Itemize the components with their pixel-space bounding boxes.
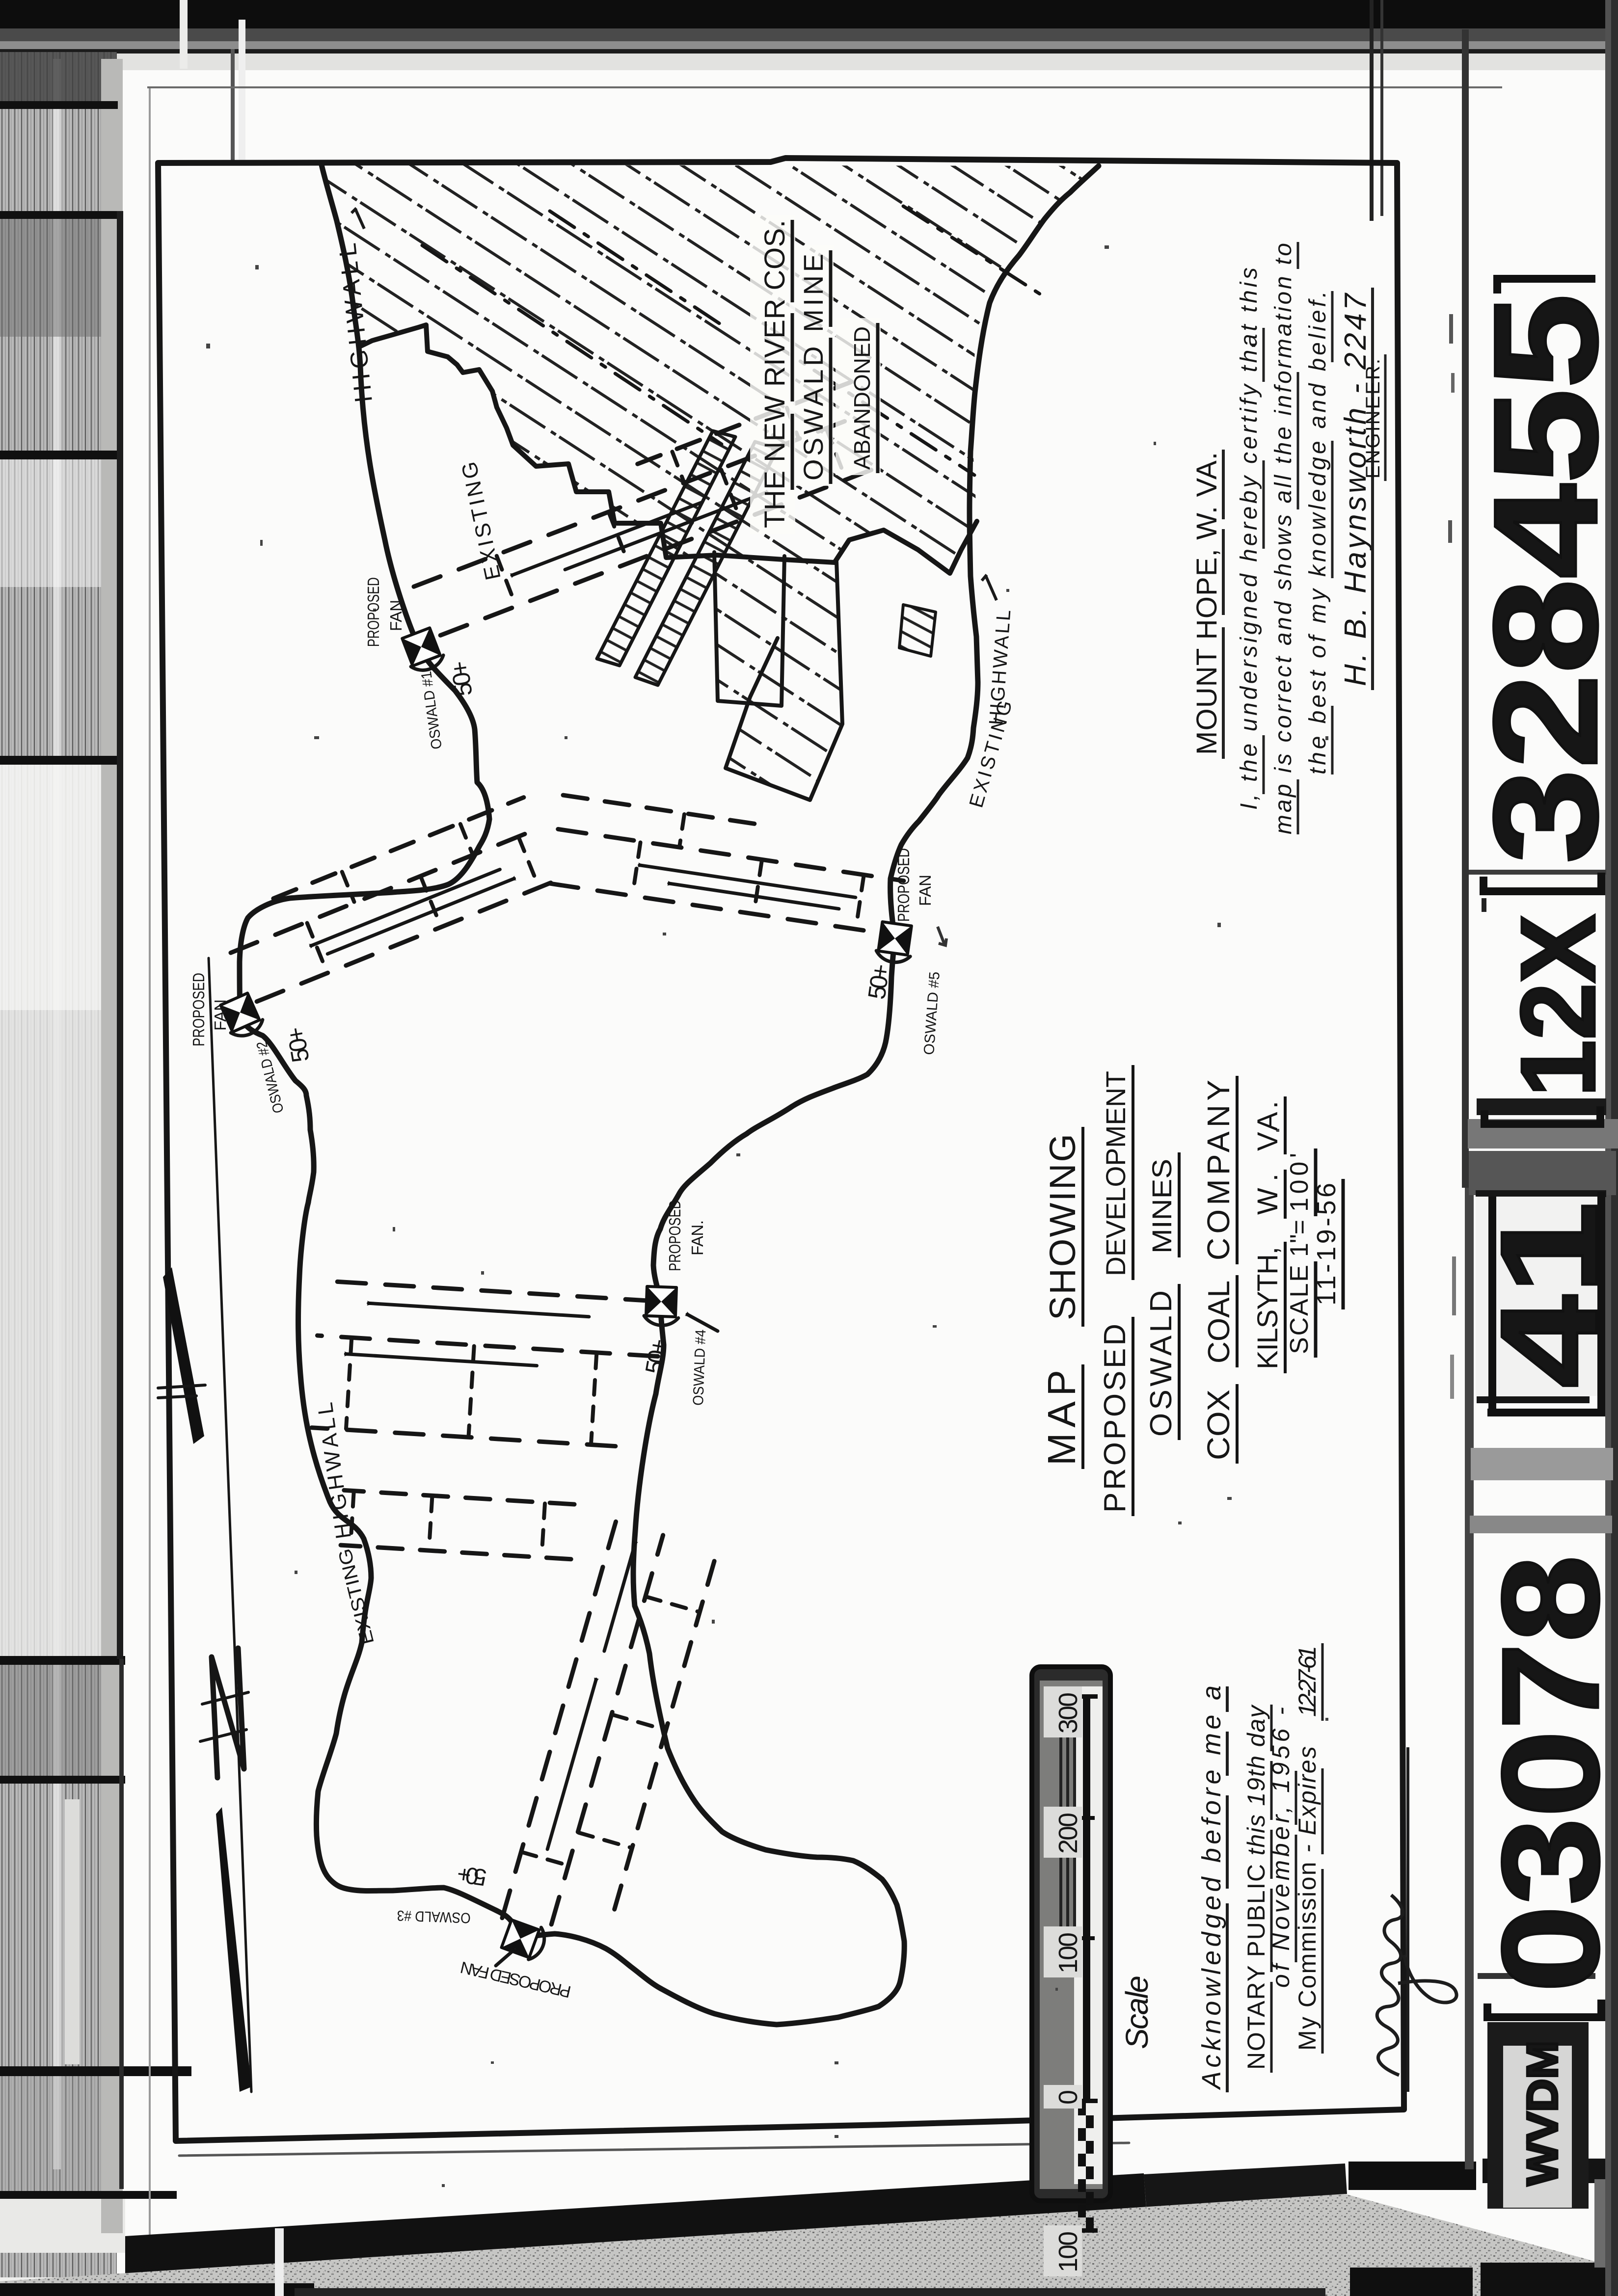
svg-text:100: 100 bbox=[1053, 1932, 1083, 1974]
svg-text:OSWALD: OSWALD bbox=[1144, 1290, 1178, 1437]
svg-text:328455: 328455 bbox=[1463, 294, 1618, 864]
svg-text:FAN: FAN bbox=[387, 600, 405, 631]
svg-text:300: 300 bbox=[1053, 1692, 1083, 1734]
svg-text:ABANDONED: ABANDONED bbox=[849, 326, 875, 470]
svg-text:03078: 03078 bbox=[1474, 1555, 1618, 1993]
svg-text:PROPOSED: PROPOSED bbox=[364, 577, 382, 647]
svg-text:MINES: MINES bbox=[1146, 1159, 1177, 1254]
svg-text:DEVELOPMENT: DEVELOPMENT bbox=[1100, 1071, 1131, 1276]
svg-text:100: 100 bbox=[1053, 2231, 1083, 2272]
svg-text:PROPOSED: PROPOSED bbox=[894, 848, 913, 922]
svg-text:MOUNT HOPE, W. VA.: MOUNT HOPE, W. VA. bbox=[1191, 451, 1223, 755]
svg-text:50+: 50+ bbox=[863, 962, 894, 1001]
svg-text:map is correct and shows all t: map is correct and shows all the informa… bbox=[1270, 243, 1296, 834]
svg-text:WVDM: WVDM bbox=[1518, 2041, 1566, 2186]
svg-text:FAN: FAN bbox=[211, 999, 229, 1031]
svg-text:12X: 12X bbox=[1499, 914, 1617, 1097]
svg-text:1"=: 1"= bbox=[1285, 1220, 1314, 1257]
svg-text:OSWALD #4: OSWALD #4 bbox=[690, 1329, 709, 1406]
svg-text:FAN.: FAN. bbox=[688, 1220, 706, 1255]
svg-text:COX: COX bbox=[1201, 1389, 1236, 1460]
svg-text:PROPOSED: PROPOSED bbox=[666, 1200, 684, 1271]
svg-text:SHOWING: SHOWING bbox=[1042, 1134, 1083, 1320]
svg-text:FAN: FAN bbox=[916, 875, 934, 906]
svg-text:50+: 50+ bbox=[456, 1861, 488, 1891]
svg-text:Scale: Scale bbox=[1119, 1976, 1155, 2049]
svg-text:SCALE: SCALE bbox=[1285, 1265, 1314, 1354]
svg-text:100': 100' bbox=[1285, 1153, 1314, 1212]
svg-text:COMPANY: COMPANY bbox=[1201, 1080, 1236, 1260]
svg-text:My Commission - Expires: My Commission - Expires bbox=[1294, 1746, 1321, 2051]
svg-text:THE NEW RIVER COS.: THE NEW RIVER COS. bbox=[759, 220, 791, 528]
svg-text:COAL: COAL bbox=[1202, 1281, 1236, 1363]
svg-text:of November, 1956 -: of November, 1956 - bbox=[1267, 1707, 1294, 1988]
svg-text:12-27-61: 12-27-61 bbox=[1294, 1646, 1321, 1717]
svg-text:KILSYTH,: KILSYTH, bbox=[1252, 1247, 1284, 1369]
svg-text:OSWALD #3: OSWALD #3 bbox=[397, 1907, 471, 1926]
svg-text:NOTARY PUBLIC this 19th day: NOTARY PUBLIC this 19th day bbox=[1242, 1704, 1270, 2070]
svg-text:11-19-56: 11-19-56 bbox=[1312, 1183, 1341, 1306]
svg-text:0: 0 bbox=[1053, 2090, 1083, 2105]
svg-text:Acknowledged before me a: Acknowledged before me a bbox=[1197, 1685, 1226, 2090]
svg-text:200: 200 bbox=[1053, 1813, 1083, 1854]
svg-text:PROPOSED: PROPOSED bbox=[189, 973, 208, 1046]
svg-text:50+: 50+ bbox=[445, 659, 477, 698]
svg-text:ENGINEER.: ENGINEER. bbox=[1362, 357, 1384, 479]
svg-text:MAP: MAP bbox=[1040, 1370, 1083, 1466]
svg-text:W.: W. bbox=[1252, 1174, 1284, 1215]
svg-text:VA.: VA. bbox=[1252, 1101, 1284, 1151]
